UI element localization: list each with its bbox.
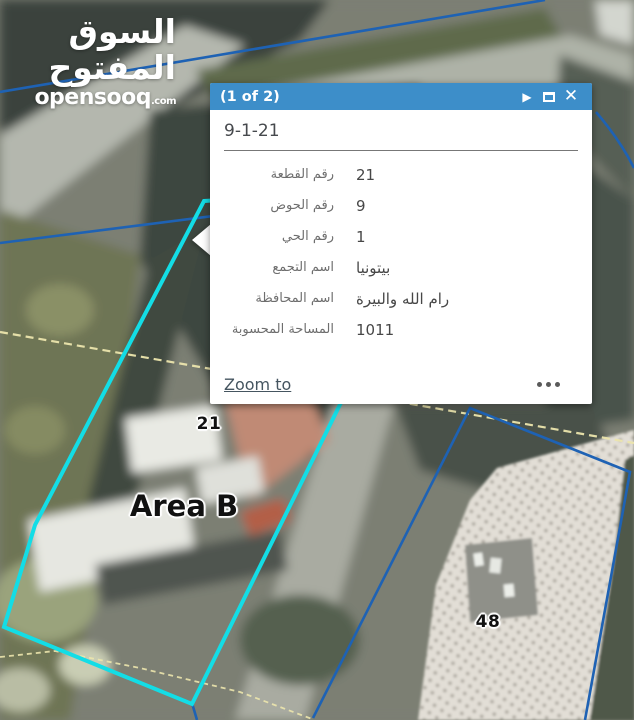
dot-icon	[546, 382, 551, 387]
popup-body: 9-1-21 رقم القطعة 21 رقم الحوض 9 رقم الح…	[210, 110, 592, 404]
field-label: رقم الحوض	[224, 198, 334, 213]
title-divider	[224, 150, 578, 151]
popup-pager: (1 of 2)	[220, 89, 280, 105]
dot-icon	[537, 382, 542, 387]
field-value: 9	[356, 197, 366, 215]
field-value: رام الله والبيرة	[356, 290, 449, 308]
table-row: رقم القطعة 21	[224, 159, 578, 190]
maximize-button[interactable]	[538, 86, 560, 108]
popup-pointer	[192, 224, 211, 256]
close-button[interactable]: ✕	[560, 86, 582, 108]
field-value: 21	[356, 166, 375, 184]
table-row: المساحة المحسوبة 1011	[224, 314, 578, 345]
maximize-icon	[543, 92, 555, 102]
popup-footer: Zoom to	[224, 375, 578, 394]
opensooq-watermark: السوق المفتوح opensooq.com	[8, 14, 176, 110]
popup-title: 9-1-21	[224, 110, 578, 150]
field-label: رقم القطعة	[224, 167, 334, 182]
field-label: اسم المحافظة	[224, 291, 334, 306]
table-row: اسم المحافظة رام الله والبيرة	[224, 283, 578, 314]
table-row: رقم الحوض 9	[224, 190, 578, 221]
field-value: 1011	[356, 321, 394, 339]
field-value: 1	[356, 228, 366, 246]
opensooq-latin-logo: opensooq.com	[8, 85, 176, 110]
close-icon: ✕	[564, 88, 578, 105]
field-label: اسم التجمع	[224, 260, 334, 275]
feature-popup: (1 of 2) ▶ ✕ 9-1-21 رقم القطعة 21 رقم	[210, 83, 592, 404]
attribute-table: رقم القطعة 21 رقم الحوض 9 رقم الحي 1 اسم…	[224, 159, 578, 345]
table-row: رقم الحي 1	[224, 221, 578, 252]
table-row: اسم التجمع بيتونيا	[224, 252, 578, 283]
opensooq-arabic-logo: السوق المفتوح	[8, 14, 176, 87]
zoom-to-link[interactable]: Zoom to	[224, 375, 291, 394]
map-canvas[interactable]: 21 Area B 48 السوق المفتوح opensooq.com …	[0, 0, 634, 720]
area-b-label: Area B	[130, 489, 238, 523]
field-label: المساحة المحسوبة	[224, 322, 334, 337]
field-value: بيتونيا	[356, 259, 390, 277]
next-feature-button[interactable]: ▶	[516, 86, 538, 108]
next-arrow-icon: ▶	[522, 91, 531, 103]
parcel-number-label: 21	[197, 414, 222, 434]
popup-header: (1 of 2) ▶ ✕	[210, 83, 592, 110]
dot-icon	[555, 382, 560, 387]
field-label: رقم الحي	[224, 229, 334, 244]
more-options-button[interactable]	[537, 382, 560, 387]
parcel-48-label: 48	[476, 612, 501, 632]
